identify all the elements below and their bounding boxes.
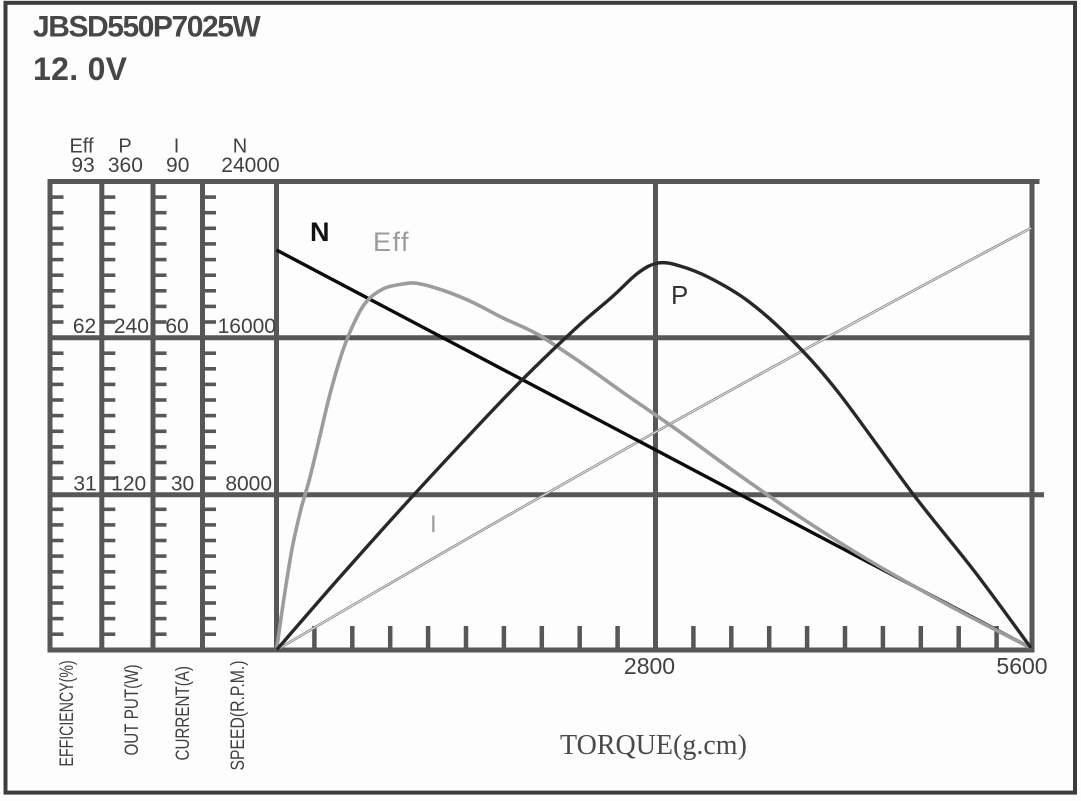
svg-text:JBSD550P7025W: JBSD550P7025W: [33, 11, 261, 44]
svg-text:30: 30: [171, 473, 194, 496]
svg-text:62: 62: [73, 315, 96, 338]
svg-text:I: I: [430, 511, 437, 538]
svg-text:120: 120: [111, 473, 146, 496]
svg-text:360: 360: [108, 154, 143, 177]
svg-text:240: 240: [114, 315, 149, 338]
svg-text:8000: 8000: [225, 473, 272, 496]
svg-text:P: P: [671, 280, 688, 310]
svg-text:Eff: Eff: [373, 227, 410, 257]
svg-text:24000: 24000: [221, 154, 279, 177]
svg-text:EFFICIENCY(%): EFFICIENCY(%): [56, 660, 78, 766]
svg-text:12. 0V: 12. 0V: [33, 51, 128, 87]
svg-text:OUT PUT(W): OUT PUT(W): [120, 664, 142, 755]
svg-text:60: 60: [165, 315, 188, 338]
svg-text:SPEED(R.P.M.): SPEED(R.P.M.): [227, 661, 249, 771]
svg-text:TORQUE(g.cm): TORQUE(g.cm): [560, 730, 747, 761]
svg-text:93: 93: [71, 154, 94, 177]
svg-text:90: 90: [166, 154, 189, 177]
svg-text:31: 31: [73, 473, 96, 496]
svg-text:N: N: [310, 217, 330, 247]
svg-text:CURRENT(A): CURRENT(A): [171, 666, 193, 760]
svg-text:2800: 2800: [624, 653, 675, 679]
svg-text:5600: 5600: [996, 653, 1047, 679]
svg-text:16000: 16000: [218, 315, 276, 338]
